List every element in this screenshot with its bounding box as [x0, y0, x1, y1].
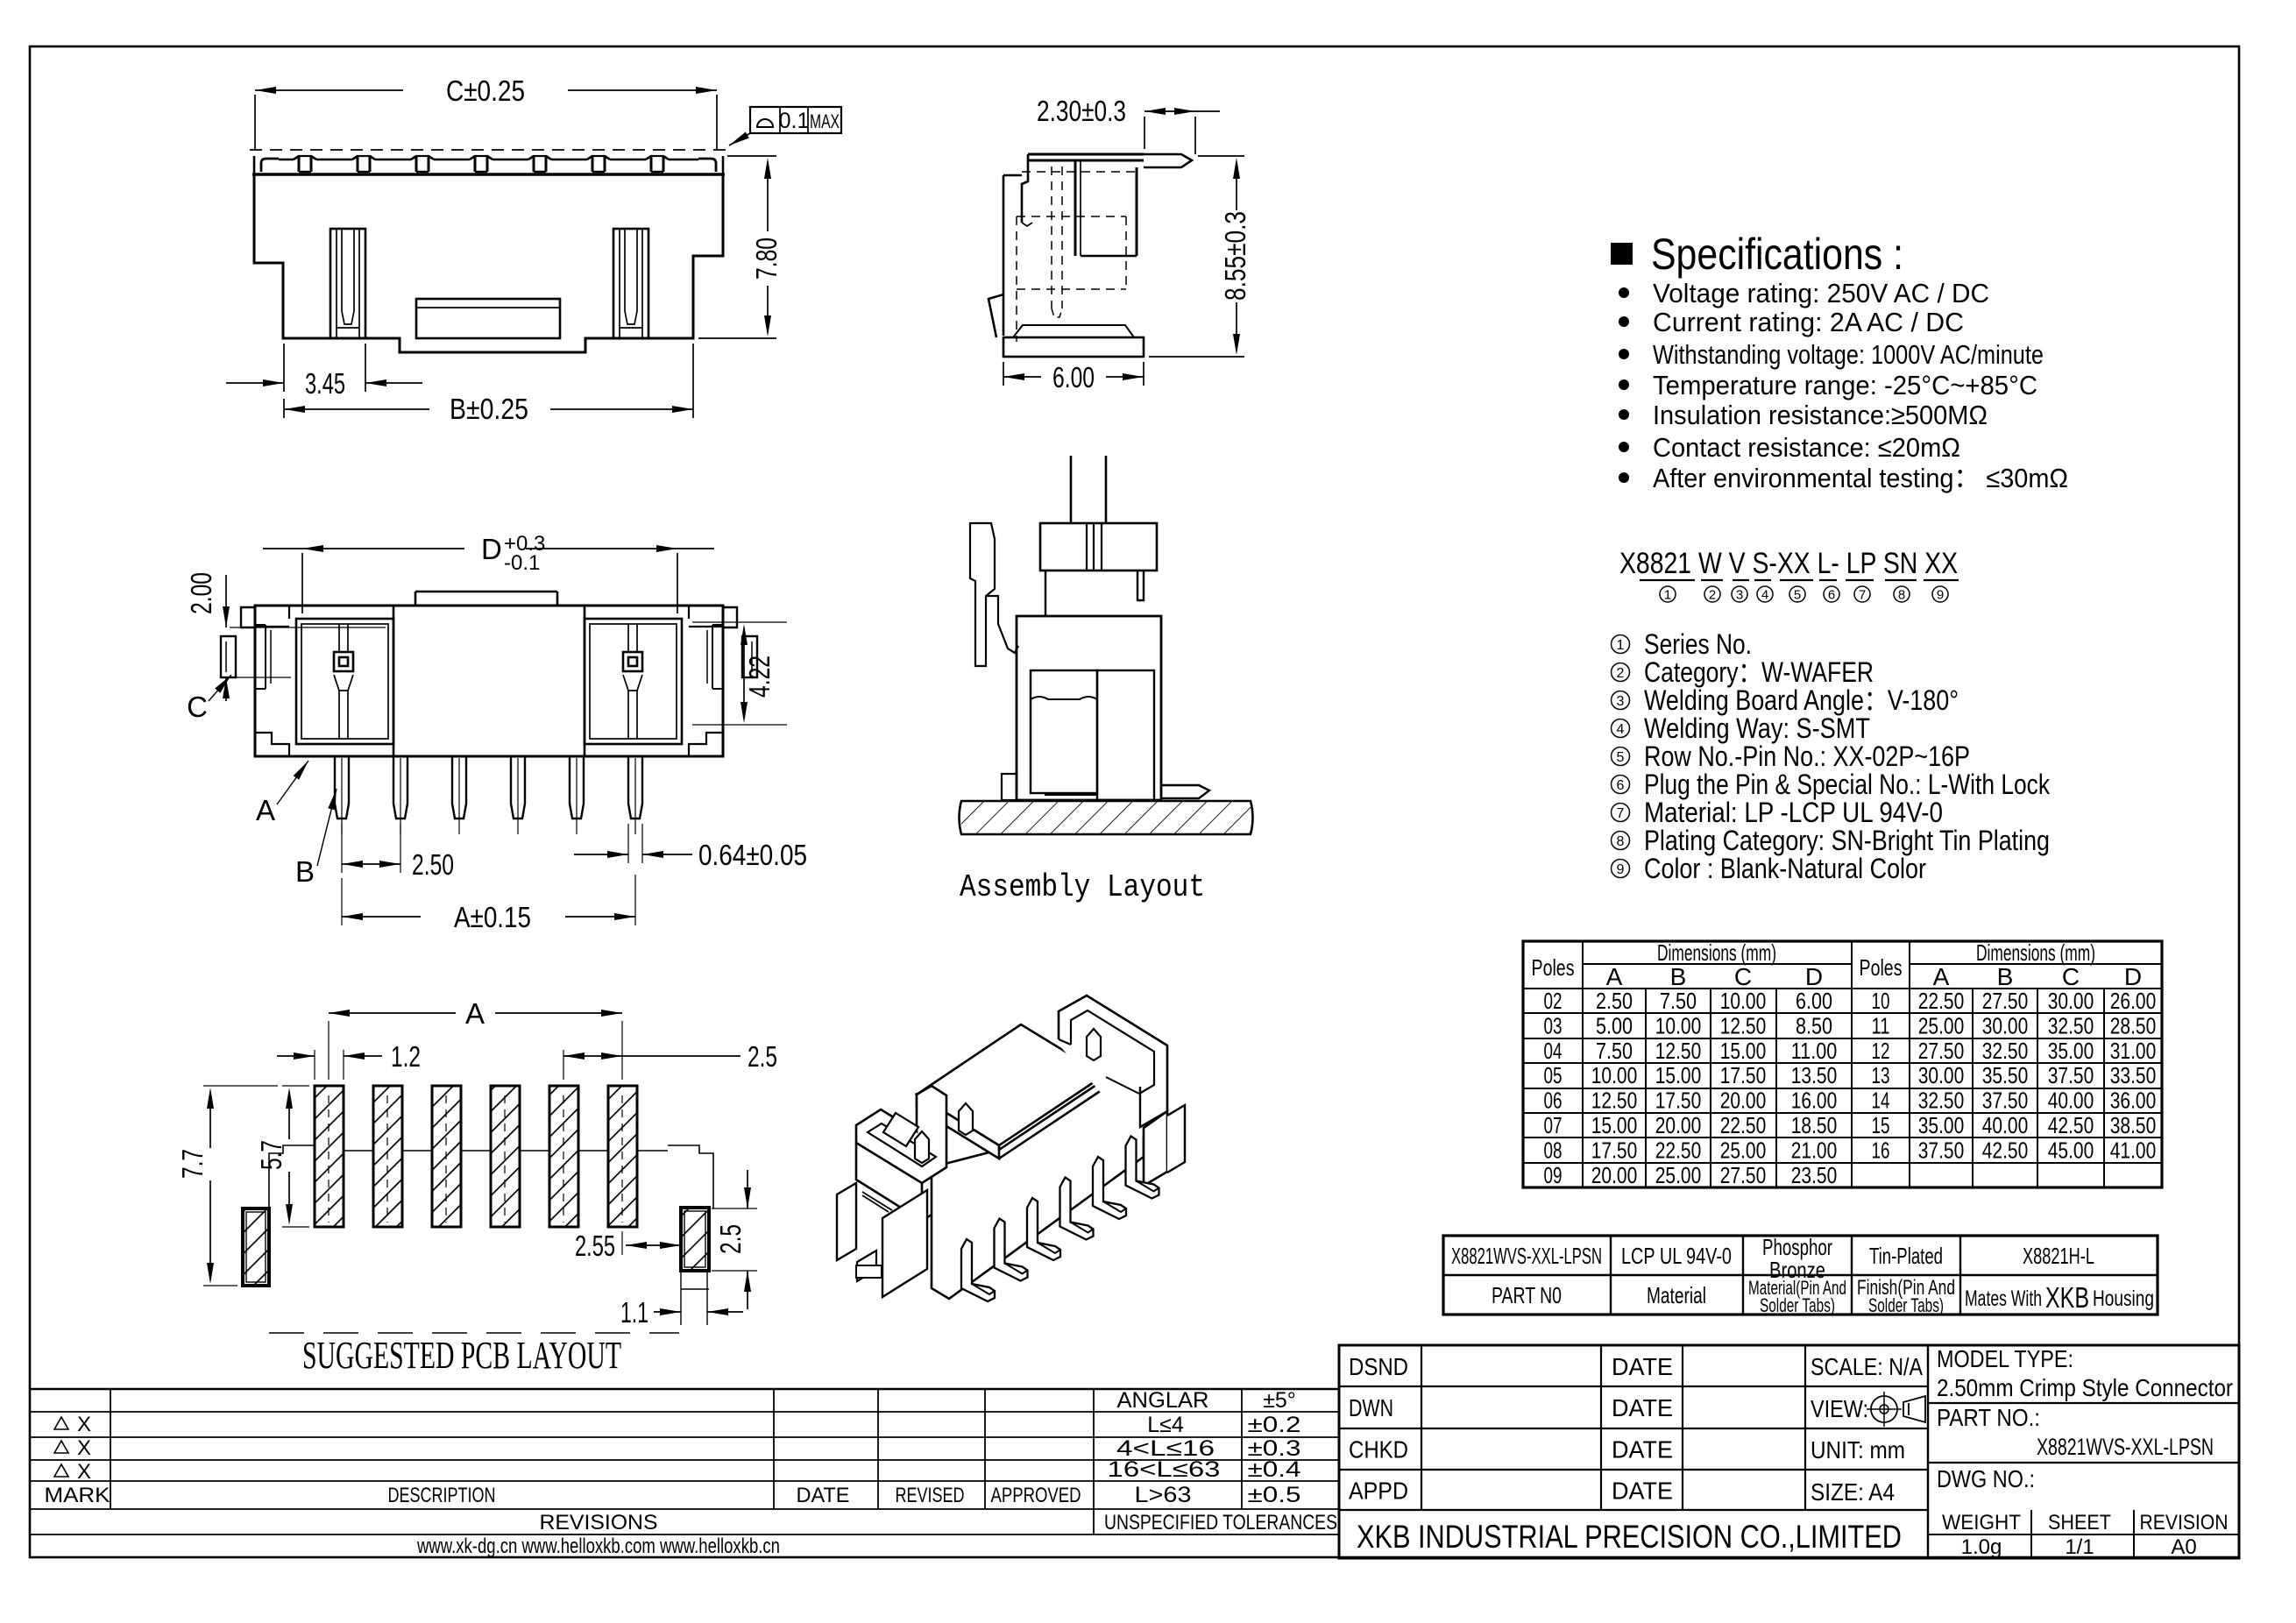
svg-text:ANGLAR: ANGLAR	[1117, 1388, 1209, 1413]
svg-text:8: 8	[1617, 834, 1625, 849]
svg-text:After environmental testing：: After environmental testing： ≤30mΩ	[1653, 463, 2068, 493]
svg-text:4: 4	[1617, 722, 1625, 737]
svg-text:L≤4: L≤4	[1147, 1413, 1184, 1437]
svg-text:Series No.: Series No.	[1644, 628, 1752, 660]
svg-text:15: 15	[1872, 1112, 1890, 1138]
svg-text:1.0g: 1.0g	[1961, 1535, 2002, 1559]
svg-text:15.00: 15.00	[1655, 1062, 1702, 1088]
svg-text:Poles: Poles	[1860, 954, 1903, 981]
svg-text:37.50: 37.50	[2048, 1062, 2094, 1088]
svg-text:A0: A0	[2171, 1535, 2196, 1559]
svg-text:4.22: 4.22	[743, 656, 776, 698]
svg-text:27.50: 27.50	[1918, 1038, 1965, 1064]
svg-text:DATE: DATE	[797, 1484, 850, 1507]
svg-text:C: C	[1734, 963, 1752, 990]
svg-text:UNIT: mm: UNIT: mm	[1811, 1436, 1905, 1464]
svg-text:Plating Category: SN-Bright T: Plating Category: SN-Bright Tin Plating	[1644, 825, 2050, 856]
svg-text:12.50: 12.50	[1720, 1012, 1767, 1038]
svg-text:12.50: 12.50	[1655, 1038, 1702, 1064]
svg-text:38.50: 38.50	[2110, 1112, 2157, 1138]
svg-text:D: D	[2124, 963, 2142, 990]
svg-text:X8821H-L: X8821H-L	[2023, 1243, 2094, 1269]
svg-text:A±0.15: A±0.15	[454, 901, 531, 933]
svg-text:13.50: 13.50	[1791, 1062, 1838, 1088]
svg-text:C±0.25: C±0.25	[446, 74, 525, 107]
svg-text:Dimensions (mm): Dimensions (mm)	[1657, 939, 1776, 966]
svg-text:Poles: Poles	[1532, 954, 1575, 981]
svg-text:37.50: 37.50	[1918, 1137, 1965, 1163]
svg-text:A: A	[1933, 963, 1950, 990]
svg-text:±0.5: ±0.5	[1248, 1483, 1301, 1507]
svg-text:4: 4	[1761, 588, 1768, 603]
svg-text:0.64±0.05: 0.64±0.05	[698, 839, 807, 871]
svg-text:C: C	[2062, 963, 2080, 990]
svg-text:Tin-Plated: Tin-Plated	[1869, 1243, 1943, 1269]
svg-text:25.00: 25.00	[1655, 1162, 1702, 1188]
svg-text:C: C	[187, 691, 208, 723]
svg-text:2: 2	[1709, 588, 1716, 603]
svg-text:Row No.-Pin No.: XX-02P~16P: Row No.-Pin No.: XX-02P~16P	[1644, 741, 1970, 772]
svg-text:40.00: 40.00	[2048, 1088, 2094, 1114]
svg-text:X: X	[77, 1413, 91, 1436]
svg-text:X8821 W V S-XX L- LP SN XX: X8821 W V S-XX L- LP SN XX	[1619, 547, 1958, 580]
svg-text:5.00: 5.00	[1596, 1012, 1633, 1038]
svg-text:Color : Blank-Natural Color: Color : Blank-Natural Color	[1644, 853, 1926, 884]
svg-text:45.00: 45.00	[2048, 1137, 2094, 1163]
svg-text:MODEL TYPE:: MODEL TYPE:	[1937, 1345, 2073, 1372]
svg-text:SCALE: N/A: SCALE: N/A	[1811, 1353, 1923, 1380]
svg-text:17.50: 17.50	[1720, 1062, 1767, 1088]
svg-text:33.50: 33.50	[2110, 1062, 2157, 1088]
svg-text:6.00: 6.00	[1796, 988, 1832, 1014]
svg-text:VIEW:: VIEW:	[1811, 1395, 1868, 1422]
svg-text:7.80: 7.80	[750, 237, 783, 280]
svg-text:SHEET: SHEET	[2048, 1511, 2111, 1534]
svg-text:8: 8	[1898, 588, 1905, 603]
svg-text:12: 12	[1872, 1038, 1890, 1064]
svg-text:Voltage rating: 250V AC / DC: Voltage rating: 250V AC / DC	[1653, 278, 1989, 308]
svg-text:X: X	[77, 1436, 91, 1460]
svg-text:DWN: DWN	[1349, 1394, 1393, 1421]
svg-text:D: D	[481, 533, 502, 565]
svg-text:1/1: 1/1	[2065, 1535, 2094, 1559]
svg-text:37.50: 37.50	[1982, 1088, 2029, 1114]
svg-text:20.00: 20.00	[1591, 1162, 1638, 1188]
svg-text:±0.2: ±0.2	[1248, 1413, 1301, 1437]
svg-text:08: 08	[1544, 1137, 1563, 1163]
svg-text:1: 1	[1664, 588, 1671, 603]
svg-text:8.55±0.3: 8.55±0.3	[1219, 211, 1251, 301]
svg-text:15.00: 15.00	[1720, 1038, 1767, 1064]
svg-text:0.1: 0.1	[779, 109, 810, 133]
svg-text:9: 9	[1617, 862, 1625, 877]
svg-text:REVISION: REVISION	[2140, 1511, 2229, 1534]
svg-text:27.50: 27.50	[1720, 1162, 1767, 1188]
svg-text:16: 16	[1872, 1137, 1890, 1163]
svg-text:06: 06	[1544, 1088, 1563, 1114]
svg-text:10.00: 10.00	[1720, 988, 1767, 1014]
svg-text:2.00: 2.00	[185, 572, 217, 614]
svg-text:25.00: 25.00	[1720, 1137, 1767, 1163]
svg-text:MAX: MAX	[810, 110, 840, 132]
svg-text:18.50: 18.50	[1791, 1112, 1838, 1138]
svg-text:11: 11	[1872, 1012, 1890, 1038]
svg-text:32.50: 32.50	[2048, 1012, 2094, 1038]
svg-text:APPD: APPD	[1349, 1478, 1408, 1505]
svg-text:02: 02	[1544, 988, 1563, 1014]
svg-text:2.30±0.3: 2.30±0.3	[1037, 95, 1126, 127]
svg-text:Category：W-WAFER: Category：W-WAFER	[1644, 656, 1874, 688]
svg-text:8.50: 8.50	[1796, 1012, 1832, 1038]
svg-text:7: 7	[1617, 806, 1625, 821]
svg-text:5: 5	[1794, 588, 1801, 603]
svg-text:22.50: 22.50	[1655, 1137, 1702, 1163]
svg-text:5: 5	[1617, 750, 1625, 765]
svg-text:27.50: 27.50	[1982, 988, 2029, 1014]
svg-text:05: 05	[1544, 1062, 1563, 1088]
svg-text:16.00: 16.00	[1791, 1088, 1838, 1114]
svg-text:www.xk-dg.cn www.helloxkb.: www.xk-dg.cn www.helloxkb.com www.hellox…	[416, 1534, 780, 1558]
svg-text:Specifications :: Specifications :	[1651, 230, 1903, 279]
svg-text:26.00: 26.00	[2110, 988, 2157, 1014]
svg-text:DWG NO.:: DWG NO.:	[1937, 1465, 2035, 1492]
svg-text:07: 07	[1544, 1112, 1563, 1138]
svg-text:41.00: 41.00	[2110, 1137, 2157, 1163]
svg-text:A: A	[1606, 963, 1623, 990]
svg-text:42.50: 42.50	[2048, 1112, 2094, 1138]
svg-text:WEIGHT: WEIGHT	[1942, 1511, 2021, 1534]
svg-text:XKB: XKB	[2045, 1281, 2089, 1314]
svg-text:±5°: ±5°	[1263, 1388, 1296, 1413]
svg-text:DATE: DATE	[1612, 1435, 1673, 1463]
svg-text:7.50: 7.50	[1596, 1038, 1633, 1064]
svg-text:DESCRIPTION: DESCRIPTION	[388, 1484, 496, 1507]
svg-text:42.50: 42.50	[1982, 1137, 2029, 1163]
svg-text:13: 13	[1872, 1062, 1890, 1088]
svg-text:14: 14	[1872, 1088, 1890, 1114]
svg-text:MARK: MARK	[45, 1484, 110, 1507]
svg-text:1.2: 1.2	[391, 1040, 421, 1073]
svg-text:5.7: 5.7	[255, 1140, 287, 1170]
svg-text:11.00: 11.00	[1791, 1038, 1838, 1064]
svg-text:32.50: 32.50	[1918, 1088, 1965, 1114]
svg-text:2.5: 2.5	[748, 1040, 777, 1073]
svg-text:7.7: 7.7	[176, 1149, 209, 1179]
svg-text:17.50: 17.50	[1655, 1088, 1702, 1114]
svg-text:30.00: 30.00	[1918, 1062, 1965, 1088]
svg-text:Current rating: 2A AC / DC: Current rating: 2A AC / DC	[1653, 307, 1964, 337]
svg-text:L>63: L>63	[1135, 1483, 1192, 1507]
svg-text:10.00: 10.00	[1591, 1062, 1638, 1088]
svg-text:Solder Tabs): Solder Tabs)	[1760, 1294, 1835, 1316]
svg-text:LCP UL 94V-0: LCP UL 94V-0	[1621, 1243, 1732, 1269]
svg-text:Welding Board Angle：V-180°: Welding Board Angle：V-180°	[1644, 684, 1959, 716]
svg-text:16<L≤63: 16<L≤63	[1108, 1457, 1221, 1482]
svg-text:PART NO.:: PART NO.:	[1937, 1404, 2040, 1431]
svg-text:2.50: 2.50	[1596, 988, 1633, 1014]
svg-text:6.00: 6.00	[1052, 361, 1095, 393]
svg-text:±0.4: ±0.4	[1248, 1457, 1301, 1482]
svg-text:3: 3	[1736, 588, 1743, 603]
svg-text:23.50: 23.50	[1791, 1162, 1838, 1188]
svg-text:B: B	[1670, 963, 1687, 990]
svg-text:10.00: 10.00	[1655, 1012, 1702, 1038]
svg-text:Withstanding voltage: 1000V AC: Withstanding voltage: 1000V AC/minute	[1653, 339, 2044, 370]
svg-text:X8821WVS-XXL-LPSN: X8821WVS-XXL-LPSN	[1451, 1243, 1602, 1269]
svg-text:Material: LP -LCP UL 94V-0: Material: LP -LCP UL 94V-0	[1644, 797, 1943, 828]
svg-text:15.00: 15.00	[1591, 1112, 1638, 1138]
svg-text:DSND: DSND	[1349, 1353, 1408, 1380]
svg-text:3.45: 3.45	[305, 367, 345, 400]
svg-text:D: D	[1805, 963, 1823, 990]
svg-text:10: 10	[1872, 988, 1890, 1014]
svg-text:XKB INDUSTRIAL PRECISION CO.,L: XKB INDUSTRIAL PRECISION CO.,LIMITED	[1357, 1519, 1902, 1555]
svg-text:25.00: 25.00	[1918, 1012, 1965, 1038]
svg-text:9: 9	[1937, 588, 1944, 603]
svg-text:32.50: 32.50	[1982, 1038, 2029, 1064]
svg-text:DATE: DATE	[1612, 1353, 1673, 1380]
svg-text:Assembly Layout: Assembly Layout	[960, 869, 1205, 905]
svg-text:09: 09	[1544, 1162, 1563, 1188]
svg-text:Contact resistance: ≤20mΩ: Contact resistance: ≤20mΩ	[1653, 432, 1960, 463]
svg-text:CHKD: CHKD	[1349, 1435, 1408, 1463]
svg-text:7: 7	[1859, 588, 1866, 603]
svg-text:APPROVED: APPROVED	[991, 1484, 1081, 1507]
svg-text:22.50: 22.50	[1720, 1112, 1767, 1138]
svg-text:B: B	[1997, 963, 2014, 990]
svg-text:Welding Way: S-SMT: Welding Way: S-SMT	[1644, 712, 1870, 744]
svg-text:1: 1	[1617, 638, 1625, 653]
svg-text:-0.1: -0.1	[504, 551, 540, 575]
svg-text:40.00: 40.00	[1982, 1112, 2029, 1138]
svg-text:22.50: 22.50	[1918, 988, 1965, 1014]
svg-text:36.00: 36.00	[2110, 1088, 2157, 1114]
svg-text:21.00: 21.00	[1791, 1137, 1838, 1163]
svg-text:28.50: 28.50	[2110, 1012, 2157, 1038]
svg-text:2.55: 2.55	[575, 1230, 615, 1262]
svg-text:20.00: 20.00	[1720, 1088, 1767, 1114]
svg-text:12.50: 12.50	[1591, 1088, 1638, 1114]
svg-text:Insulation resistance:≥500MΩ: Insulation resistance:≥500MΩ	[1653, 400, 1988, 430]
svg-text:DATE: DATE	[1612, 1394, 1673, 1421]
svg-text:Mates With: Mates With	[1965, 1286, 2042, 1311]
svg-text:2.50: 2.50	[412, 848, 454, 881]
svg-text:DATE: DATE	[1612, 1478, 1673, 1505]
svg-text:6: 6	[1828, 588, 1835, 603]
svg-text:20.00: 20.00	[1655, 1112, 1702, 1138]
svg-text:04: 04	[1544, 1038, 1563, 1064]
svg-text:30.00: 30.00	[2048, 988, 2094, 1014]
svg-text:35.50: 35.50	[1982, 1062, 2029, 1088]
svg-text:REVISIONS: REVISIONS	[540, 1511, 658, 1534]
svg-text:03: 03	[1544, 1012, 1563, 1038]
svg-text:REVISED: REVISED	[896, 1484, 965, 1507]
svg-text:A: A	[256, 794, 275, 826]
svg-text:35.00: 35.00	[2048, 1038, 2094, 1064]
svg-text:B±0.25: B±0.25	[450, 393, 528, 425]
svg-text:2.50mm Crimp Style Connector: 2.50mm Crimp Style Connector	[1937, 1374, 2233, 1401]
svg-text:Housing: Housing	[2093, 1286, 2154, 1311]
svg-text:31.00: 31.00	[2110, 1038, 2157, 1064]
svg-text:6: 6	[1617, 778, 1625, 793]
svg-text:PART N0: PART N0	[1492, 1282, 1562, 1308]
svg-text:Dimensions (mm): Dimensions (mm)	[1976, 939, 2095, 966]
svg-text:2: 2	[1617, 666, 1625, 681]
svg-text:Temperature range: -25°C~+85°C: Temperature range: -25°C~+85°C	[1653, 370, 2037, 400]
svg-text:Plug the Pin & Special No.: L-: Plug the Pin & Special No.: L-With Lock	[1644, 769, 2051, 800]
svg-text:SIZE: A4: SIZE: A4	[1811, 1478, 1895, 1506]
svg-text:Material: Material	[1647, 1282, 1706, 1308]
svg-text:UNSPECIFIED TOLERANCES: UNSPECIFIED TOLERANCES	[1104, 1511, 1337, 1534]
svg-text:X: X	[77, 1460, 91, 1484]
svg-text:7.50: 7.50	[1660, 988, 1697, 1014]
svg-text:30.00: 30.00	[1982, 1012, 2029, 1038]
svg-text:SUGGESTED PCB LAYOUT: SUGGESTED PCB LAYOUT	[302, 1334, 621, 1377]
svg-text:35.00: 35.00	[1918, 1112, 1965, 1138]
svg-text:17.50: 17.50	[1591, 1137, 1638, 1163]
svg-text:2.5: 2.5	[714, 1224, 747, 1254]
svg-text:X8821WVS-XXL-LPSN: X8821WVS-XXL-LPSN	[2037, 1434, 2214, 1460]
svg-text:1.1: 1.1	[620, 1296, 648, 1329]
svg-text:B: B	[295, 855, 315, 888]
svg-text:A: A	[465, 997, 485, 1030]
svg-text:3: 3	[1617, 694, 1625, 709]
svg-text:Solder Tabs): Solder Tabs)	[1868, 1294, 1944, 1316]
